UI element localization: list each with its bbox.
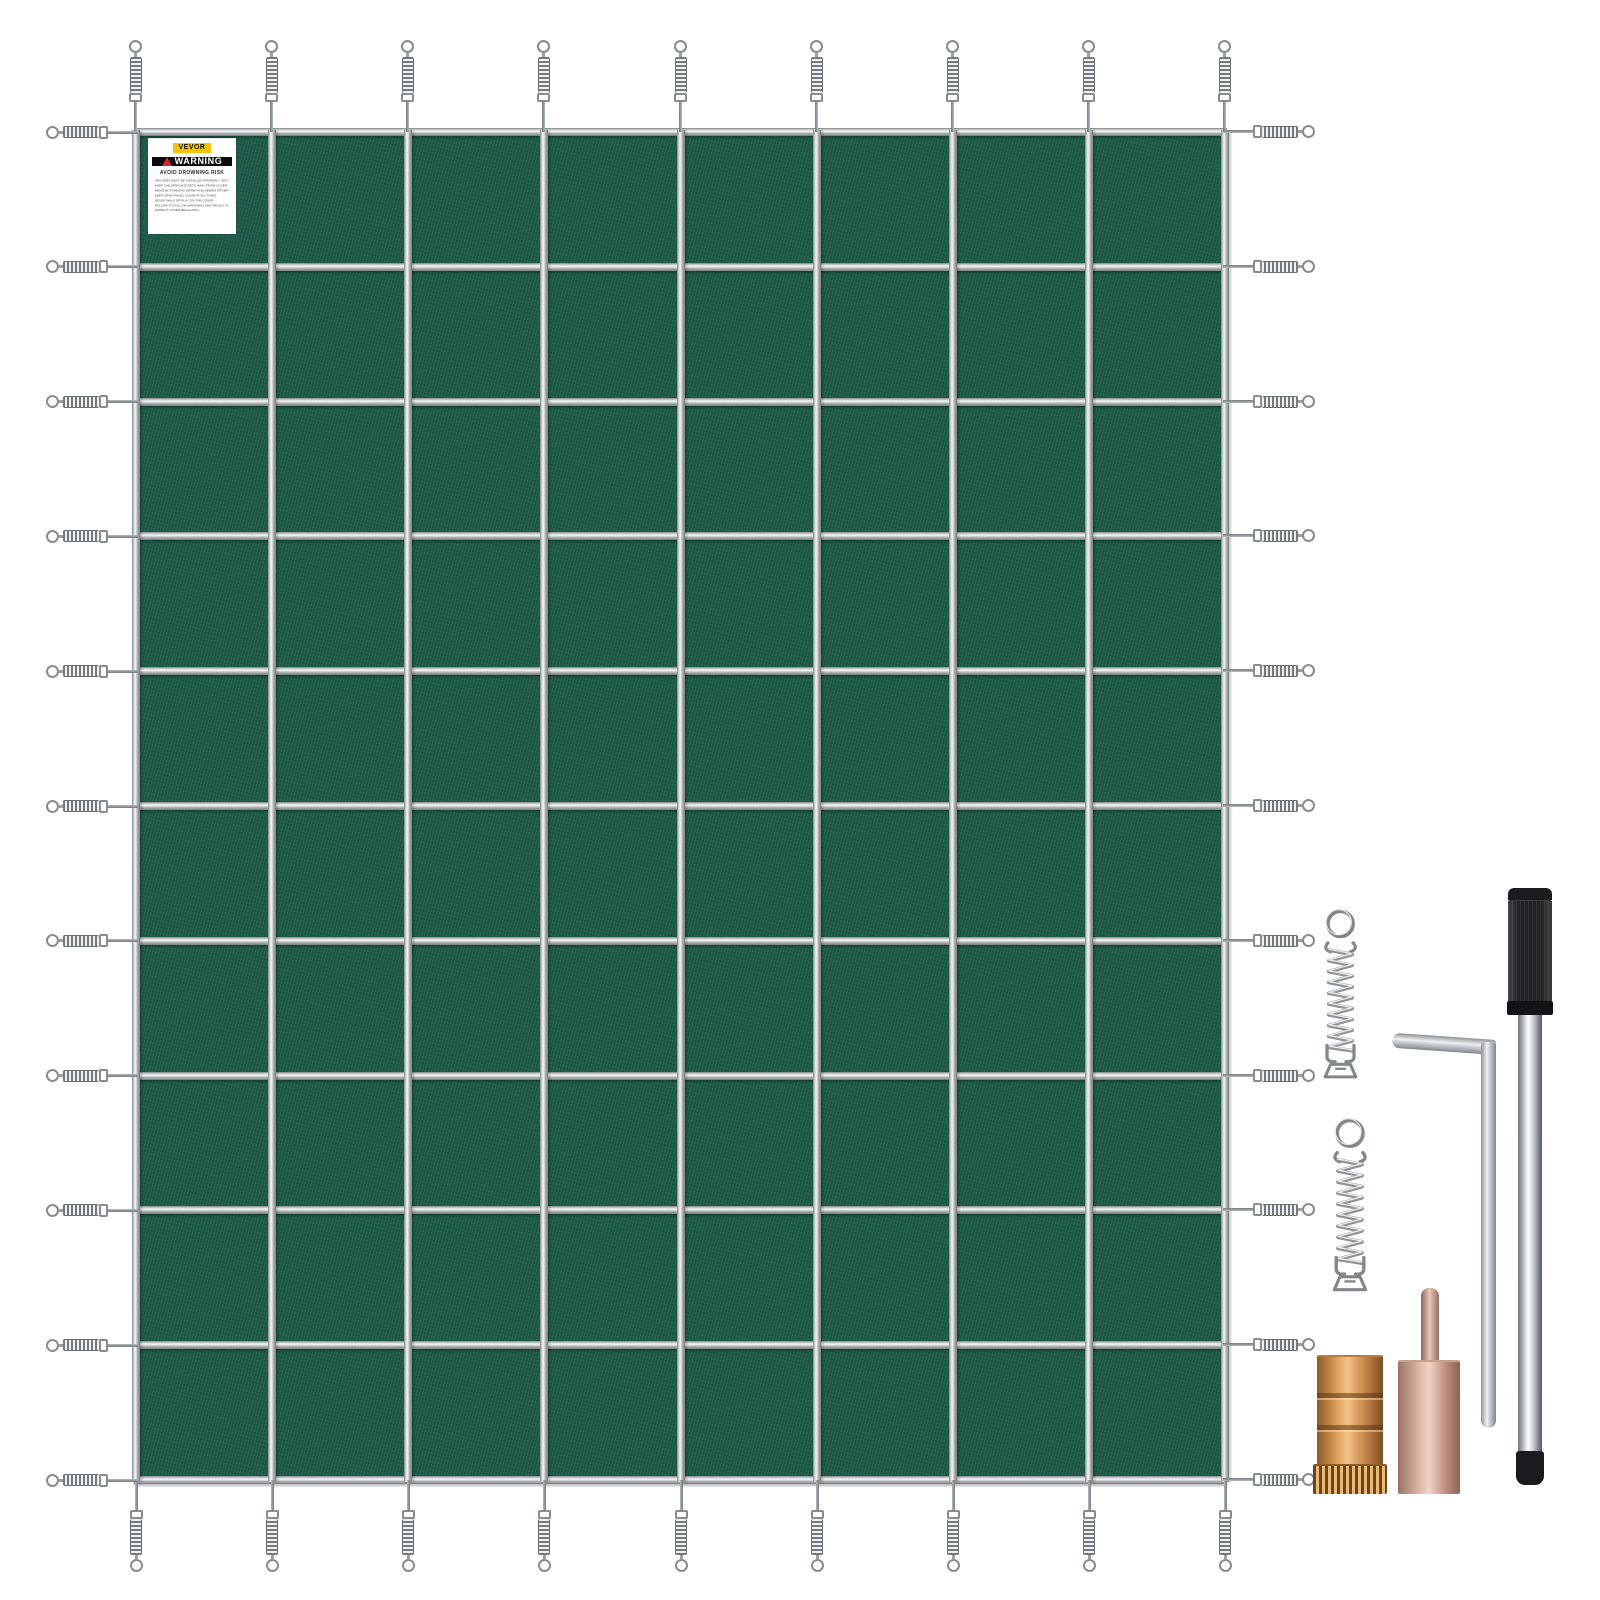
spring-coil [266,57,278,93]
warning-subtitle: AVOID DROWNING RISK [160,170,224,176]
d-ring [1302,1204,1315,1217]
spring-buckle [99,1204,108,1217]
stainless-spring-fastener [1327,1112,1373,1300]
warning-fine-print: ANCHORS MUST BE INSTALLED PROPERLY. SECU… [155,179,229,214]
vertical-strap [677,130,685,1482]
spring-buckle [538,1510,551,1519]
spring-fastener [1223,1336,1315,1354]
spring-coil [1262,800,1298,812]
spring-buckle [99,800,108,813]
spring-coil [1262,935,1298,947]
strap-stub [271,1480,274,1510]
spring-coil [63,261,99,273]
strap-stub [1223,1344,1253,1347]
spring-coil [1262,665,1298,677]
strap-stub [1087,102,1090,132]
d-ring [46,260,59,273]
spring-buckle [1253,665,1262,678]
d-ring [1302,1339,1315,1352]
anchor-groove [1317,1393,1383,1398]
strap-stub [1223,670,1253,673]
spring-fastener [399,1480,417,1572]
d-ring [946,40,959,53]
rod-shaft [1518,1015,1542,1451]
spring-buckle [1253,1204,1262,1217]
spring-buckle [1253,1339,1262,1352]
vertical-strap [1085,130,1093,1482]
d-ring [1082,40,1095,53]
warning-fine-print-line: NEVER WALK OR PLAY ON THE COVER. [155,199,229,203]
spring-coil [811,57,823,93]
spring-hook [135,1555,138,1559]
spring-buckle [1253,934,1262,947]
spring-buckle [1082,93,1095,102]
spring-hook [1298,131,1302,134]
d-ring [674,1559,687,1572]
spring-buckle [946,1510,959,1519]
spring-buckle [1253,800,1262,813]
spring-fastener [399,40,417,132]
spring-coil [63,1070,99,1082]
warning-fine-print-line: ANCHORS MUST BE INSTALLED PROPERLY. SECU… [155,179,229,183]
d-ring [1082,1559,1095,1572]
spring-fastener [46,1067,138,1085]
warning-fine-print-line: KEEP DRAIN PANEL CLEAR AT ALL TIMES. [155,194,229,198]
spring-coil [63,935,99,947]
d-ring [46,395,59,408]
spring-fastener [1223,1067,1315,1085]
spring-buckle [99,530,108,543]
spring-fastener [263,40,281,132]
spring-coil [538,1519,550,1555]
strap-stub [951,102,954,132]
spring-fastener [672,1480,690,1572]
warning-triangle-icon [162,157,172,166]
d-ring [810,1559,823,1572]
strap-stub [108,535,138,538]
vertical-strap [540,130,548,1482]
strap-stub [679,1480,682,1510]
spring-coil [811,1519,823,1555]
spring-coil [1083,1519,1095,1555]
spring-buckle [810,93,823,102]
strap-stub [108,1344,138,1347]
anchor-tamping-tool-pin [1421,1288,1439,1364]
spring-coil [1262,1070,1298,1082]
warning-fine-print-line: KEEP CHILDREN AND PETS AWAY FROM COVER. [155,184,229,188]
spring-fastener [46,527,138,545]
d-ring [266,40,279,53]
d-ring [46,530,59,543]
spring-coil [130,57,142,93]
spring-hook [1298,1479,1302,1482]
brass-anchor-knurled-base [1313,1464,1387,1494]
d-ring [1302,1069,1315,1082]
spring-fastener [46,797,138,815]
spring-buckle [1253,1069,1262,1082]
d-ring [538,1559,551,1572]
warning-title: WARNING [175,157,223,166]
strap-stub [1223,265,1253,268]
spring-coil [538,57,550,93]
spring-buckle [99,934,108,947]
strap-stub [951,1480,954,1510]
d-ring [538,40,551,53]
spring-hook [407,1555,410,1559]
strap-stub [1223,805,1253,808]
strap-stub [1223,400,1253,403]
installation-rod [1508,888,1552,1485]
spring-buckle [99,395,108,408]
spring-hook [679,1555,682,1559]
vertical-strap [813,130,821,1482]
spring-fastener [1080,40,1098,132]
d-ring [1302,395,1315,408]
spring-fastener [263,1480,281,1572]
spring-hook [1298,939,1302,942]
d-ring [46,126,59,139]
strap-stub [1223,1209,1253,1212]
spring-fastener [1216,40,1234,132]
warning-header-bar: WARNING [152,157,232,166]
spring-fastener [1223,258,1315,276]
spring-hook [1298,400,1302,403]
d-ring [1219,40,1232,53]
d-ring [1302,260,1315,273]
stainless-spring-fastener [1318,903,1363,1087]
warning-fine-print-line: REMOVE STANDING WATER AND DEBRIS PROMPTL… [155,189,229,193]
strap-stub [1223,1074,1253,1077]
spring-buckle [1253,260,1262,273]
spring-buckle [99,1339,108,1352]
spring-coil [1262,261,1298,273]
spring-coil [63,1204,99,1216]
spring-buckle [674,1510,687,1519]
spring-fastener [1223,797,1315,815]
d-ring [810,40,823,53]
strap-stub [815,102,818,132]
strap-stub [1223,939,1253,942]
rod-collar [1507,1001,1553,1015]
spring-coil [1083,57,1095,93]
vertical-strap [404,130,412,1482]
rod-tip [1516,1451,1544,1485]
spring-coil [402,1519,414,1555]
strap-stub [108,400,138,403]
d-ring [1302,800,1315,813]
spring-buckle [402,1510,415,1519]
spring-fastener [46,1471,138,1489]
rod-handle-grip [1508,901,1552,1001]
warning-label: VEVOR WARNING AVOID DROWNING RISK ANCHOR… [148,138,236,234]
strap-stub [1087,1480,1090,1510]
spring-fastener [1223,1471,1315,1489]
spring-fastener [808,40,826,132]
spring-hook [1298,265,1302,268]
spring-coil [1219,57,1231,93]
spring-hook [1224,1555,1227,1559]
spring-coil [947,1519,959,1555]
strap-stub [543,102,546,132]
spring-buckle [1219,1510,1232,1519]
spring-fastener [46,393,138,411]
d-ring [130,40,143,53]
spring-coil [1262,1474,1298,1486]
strap-stub [1223,535,1253,538]
spring-hook [951,1555,954,1559]
d-ring [46,665,59,678]
spring-coil [63,800,99,812]
spring-fastener [1223,527,1315,545]
warning-fine-print-line: FAILURE TO FOLLOW WARNINGS MAY RESULT IN… [155,204,229,208]
spring-fastener [1080,1480,1098,1572]
spring-fastener [944,40,962,132]
spring-buckle [266,1510,279,1519]
spring-buckle [538,93,551,102]
spring-coil [266,1519,278,1555]
spring-hook [1298,805,1302,808]
spring-fastener [46,1201,138,1219]
strap-stub [108,1209,138,1212]
strap-stub [1223,1479,1253,1482]
strap-stub [108,805,138,808]
spring-fastener [535,40,553,132]
spring-fastener [127,1480,145,1572]
d-ring [46,934,59,947]
spring-coil [1262,396,1298,408]
strap-stub [108,1479,138,1482]
strap-stub [271,102,274,132]
spring-coil [1262,1204,1298,1216]
spring-coil [63,665,99,677]
d-ring [402,40,415,53]
spring-hook [271,1555,274,1559]
d-ring [46,1069,59,1082]
anchor-groove [1317,1425,1383,1430]
spring-fastener [535,1480,553,1572]
strap-stub [679,102,682,132]
spring-fastener [944,1480,962,1572]
spring-hook [1298,670,1302,673]
spring-buckle [674,93,687,102]
strap-stub [815,1480,818,1510]
spring-buckle [130,93,143,102]
spring-buckle [1082,1510,1095,1519]
spring-coil [130,1519,142,1555]
spring-buckle [1219,93,1232,102]
spring-hook [815,1555,818,1559]
spring-buckle [1253,1474,1262,1487]
d-ring [1302,934,1315,947]
spring-fastener [1223,1201,1315,1219]
strap-stub [108,265,138,268]
d-ring [46,1204,59,1217]
d-ring [1302,530,1315,543]
spring-hook [1298,535,1302,538]
spring-coil [675,1519,687,1555]
strap-stub [108,939,138,942]
spring-coil [402,57,414,93]
rod-cap [1508,888,1552,901]
spring-hook [1087,1555,1090,1559]
spring-buckle [266,93,279,102]
strap-stub [108,131,138,134]
spring-coil [1262,126,1298,138]
spring-buckle [99,665,108,678]
spring-fastener [127,40,145,132]
d-ring [46,1339,59,1352]
spring-fastener [808,1480,826,1572]
d-ring [1219,1559,1232,1572]
spring-buckle [402,93,415,102]
d-ring [674,40,687,53]
spring-coil [1262,1339,1298,1351]
spring-buckle [130,1510,143,1519]
vevor-logo-badge: VEVOR [173,143,210,153]
d-ring [46,1474,59,1487]
d-ring [946,1559,959,1572]
spring-fastener [1223,393,1315,411]
d-ring [1302,665,1315,678]
spring-fastener [1223,123,1315,141]
spring-fastener [46,932,138,950]
spring-coil [1262,530,1298,542]
spring-fastener [46,123,138,141]
strap-stub [407,1480,410,1510]
spring-fastener [46,662,138,680]
spring-buckle [1253,530,1262,543]
product-photo-scene: VEVOR WARNING AVOID DROWNING RISK ANCHOR… [0,0,1600,1600]
d-ring [266,1559,279,1572]
d-ring [1302,126,1315,139]
spring-fastener [1223,662,1315,680]
spring-buckle [1253,395,1262,408]
spring-coil [947,57,959,93]
spring-hook [1298,1074,1302,1077]
warning-fine-print-line: INSPECT COVER REGULARLY. [155,209,229,213]
vertical-strap [268,130,276,1482]
spring-fastener [1216,1480,1234,1572]
spring-buckle [99,1474,108,1487]
spring-fastener [46,258,138,276]
spring-coil [63,126,99,138]
spring-buckle [810,1510,823,1519]
spring-hook [543,1555,546,1559]
d-ring [130,1559,143,1572]
strap-stub [1223,131,1253,134]
spring-fastener [672,40,690,132]
spring-coil [63,530,99,542]
spring-coil [675,57,687,93]
spring-buckle [1253,126,1262,139]
strap-stub [108,1074,138,1077]
spring-coil [63,1339,99,1351]
strap-stub [108,670,138,673]
spring-buckle [99,126,108,139]
spring-hook [1298,1344,1302,1347]
spring-hook [1298,1209,1302,1212]
d-ring [46,800,59,813]
spring-coil [1219,1519,1231,1555]
spring-buckle [99,260,108,273]
strap-stub [543,1480,546,1510]
spring-fastener [1223,932,1315,950]
strap-stub [407,102,410,132]
d-ring [402,1559,415,1572]
spring-coil [63,1474,99,1486]
brass-anchor [1317,1355,1383,1468]
anchor-tamping-tool [1398,1360,1460,1494]
spring-coil [63,396,99,408]
spring-buckle [946,93,959,102]
hex-key [1481,1042,1496,1428]
spring-buckle [99,1069,108,1082]
spring-fastener [46,1336,138,1354]
vertical-strap [949,130,957,1482]
